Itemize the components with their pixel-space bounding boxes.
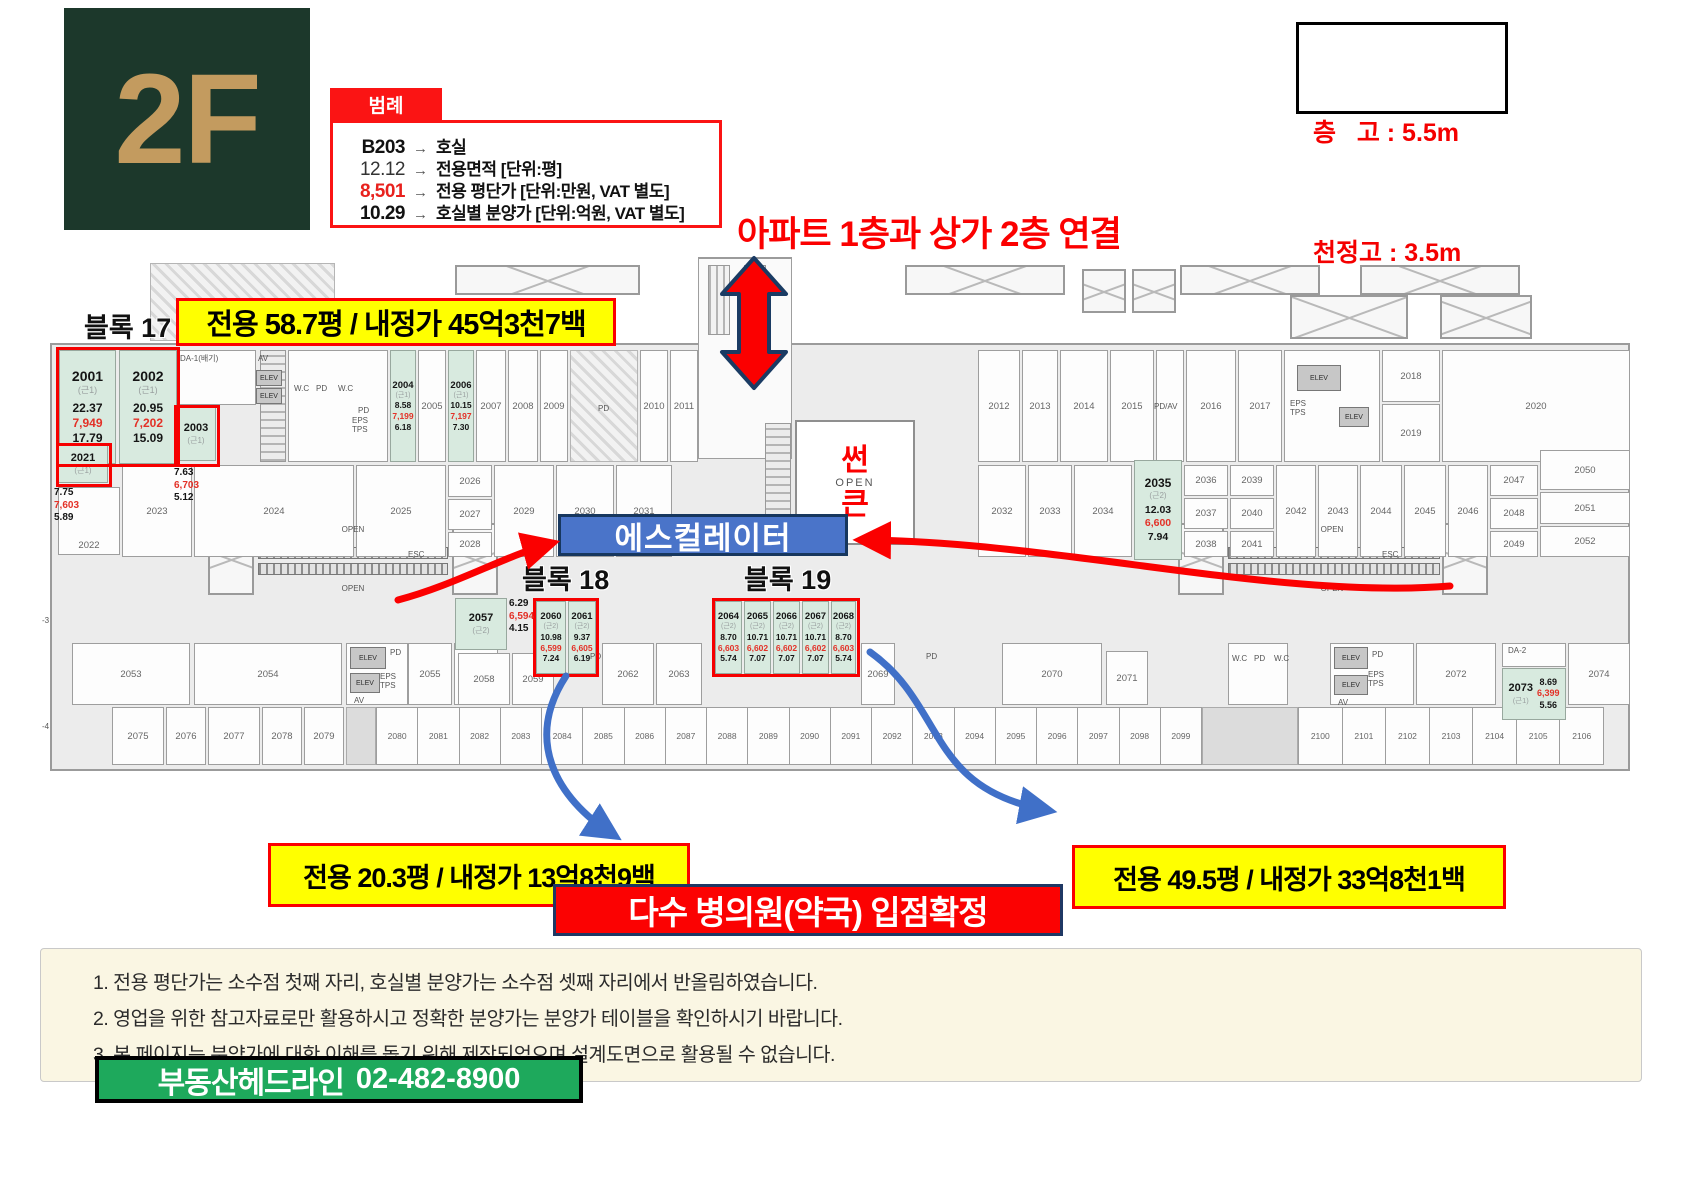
label-eps-tps: EPS TPS — [352, 417, 368, 435]
room-2098: 2098 — [1120, 708, 1161, 764]
block17-label: 블록 17 — [84, 306, 171, 345]
room-2050: 2050 — [1540, 450, 1630, 490]
room-2024: 2024 — [194, 465, 354, 557]
vent-xbox — [1290, 295, 1408, 339]
room-2055: 2055 — [408, 643, 452, 705]
room-2015: 2015 — [1110, 350, 1154, 462]
room-2096: 2096 — [1037, 708, 1078, 764]
elevator-icon: ELEV — [1334, 675, 1368, 695]
arrow-icon: → — [413, 206, 428, 223]
unit-2060: 2060(근2)10.986,5997.24 — [536, 601, 566, 674]
unit-2021-values: 7.757,6035.89 — [54, 487, 79, 525]
facility-room — [288, 350, 388, 462]
label-av: AV — [354, 697, 364, 706]
room-2017: 2017 — [1238, 350, 1282, 462]
label-wc: W.C — [1274, 655, 1289, 664]
unit-2068: 2068(근2)8.706,6035.74 — [831, 601, 856, 674]
room-2027: 2027 — [448, 499, 492, 530]
page: 2F 범례 B203 → 호실 12.12 → 전용면적 [단위:평] 8,50… — [0, 0, 1682, 1190]
room-2037: 2037 — [1184, 498, 1228, 529]
label-open: OPEN — [307, 585, 399, 594]
room-2029: 2029 — [494, 465, 554, 557]
room-2008: 2008 — [508, 350, 538, 462]
legend-desc: 호실별 분양가 [단위:억원, VAT 별도] — [436, 199, 684, 224]
label-pd: PD — [316, 385, 327, 394]
room-2038: 2038 — [1184, 531, 1228, 557]
room-2010: 2010 — [640, 350, 668, 462]
stair-gap — [346, 707, 376, 765]
room-2014: 2014 — [1060, 350, 1108, 462]
room-2036: 2036 — [1184, 465, 1228, 496]
label-eps-tps: EPS TPS — [1290, 400, 1306, 418]
label-pd: PD — [590, 653, 601, 662]
label-esc: ESC — [408, 551, 424, 560]
vent-xbox — [905, 265, 1065, 295]
legend-row: 10.29 → 호실별 분양가 [단위:억원, VAT 별도] — [349, 199, 709, 221]
room-2045: 2045 — [1404, 465, 1446, 557]
room-2097: 2097 — [1078, 708, 1119, 764]
room-2062: 2062 — [602, 643, 654, 705]
label-eps-tps: EPS TPS — [1368, 671, 1384, 689]
unit-2065: 2065(근2)10.716,6027.07 — [744, 601, 771, 674]
room-2087: 2087 — [666, 708, 707, 764]
room-2032: 2032 — [978, 465, 1026, 557]
room-2090: 2090 — [790, 708, 831, 764]
unit-2003: 2003(근1) — [176, 407, 216, 461]
elevator-icon: ELEV — [1339, 407, 1369, 427]
room-2047: 2047 — [1490, 465, 1538, 496]
room-2025: 2025 — [356, 465, 446, 557]
elevator-icon: ELEV — [256, 370, 282, 386]
room-2016: 2016 — [1186, 350, 1236, 462]
room-2052: 2052 — [1540, 526, 1630, 557]
room-2028: 2028 — [448, 532, 492, 557]
legend: B203 → 호실 12.12 → 전용면적 [단위:평] 8,501 → 전용… — [330, 120, 722, 228]
room-2091: 2091 — [831, 708, 872, 764]
unit-2035: 2035(근2)12.036,6007.94 — [1134, 460, 1182, 560]
unit-2066: 2066(근2)10.716,6027.07 — [773, 601, 800, 674]
room-2077: 2077 — [208, 707, 260, 765]
label-open: OPEN — [1272, 585, 1392, 594]
room-2092: 2092 — [872, 708, 913, 764]
elevator-icon: ELEV — [256, 388, 282, 404]
room-2058: 2058 — [458, 653, 510, 705]
room-2033: 2033 — [1028, 465, 1072, 557]
label-wc: W.C — [338, 385, 353, 394]
room-2093: 2093 — [913, 708, 954, 764]
floor-label: 2F — [114, 46, 259, 193]
room-2085: 2085 — [583, 708, 624, 764]
room-2040: 2040 — [1230, 498, 1274, 529]
label-pdav: PD/AV — [1154, 403, 1177, 412]
elevator-icon: ELEV — [350, 673, 380, 693]
unit-2067: 2067(근2)10.716,6027.07 — [802, 601, 829, 674]
room-2046: 2046 — [1448, 465, 1488, 557]
room-2074: 2074 — [1568, 643, 1630, 705]
stair-gap — [1202, 707, 1298, 765]
room-2053: 2053 — [72, 643, 190, 705]
room-2005: 2005 — [418, 350, 446, 462]
room-2034: 2034 — [1074, 465, 1132, 557]
room-2071: 2071 — [1106, 651, 1148, 705]
escalator-banner: 에스컬레이터 — [558, 514, 848, 556]
height-info: 층 고 : 5.5m 천정고 : 3.5m — [1296, 22, 1508, 114]
legend-value: 10.29 — [349, 203, 405, 225]
unit-2057-values: 6.296,5944.15 — [509, 598, 534, 636]
label-open: OPEN — [307, 526, 399, 535]
room-2012: 2012 — [978, 350, 1020, 462]
room-2081: 2081 — [418, 708, 459, 764]
room-2099: 2099 — [1161, 708, 1201, 764]
label-pd: PD — [390, 649, 401, 658]
label-open: OPEN — [1272, 526, 1392, 535]
legend-row: B203 → 호실 — [349, 133, 709, 155]
room-2106: 2106 — [1560, 708, 1603, 764]
label-esc: ESC — [1382, 551, 1398, 560]
room-2083: 2083 — [501, 708, 542, 764]
stairs-icon — [260, 350, 286, 462]
confirmation-banner: 다수 병의원(약국) 입점확정 — [553, 884, 1063, 936]
room-2043: 2043 — [1318, 465, 1358, 557]
vent-xbox — [455, 265, 640, 295]
room-2086: 2086 — [625, 708, 666, 764]
label-pd: PD — [358, 407, 369, 416]
label-da1: DA-1(배기) — [180, 355, 218, 364]
room-2101: 2101 — [1343, 708, 1387, 764]
room-2069: 2069 — [861, 643, 895, 705]
room-2039: 2039 — [1230, 465, 1274, 496]
label-da2: DA-2 — [1508, 647, 1526, 656]
room-2082: 2082 — [460, 708, 501, 764]
footnote-line: 1. 전용 평단가는 소수점 첫째 자리, 호실별 분양가는 소수점 셋째 자리… — [93, 965, 1641, 1001]
room-2089: 2089 — [748, 708, 789, 764]
unit-2002: 2002(근1)20.957,20215.09 — [119, 350, 177, 464]
label-eps-tps: EPS TPS — [380, 673, 396, 691]
room-2044: 2044 — [1360, 465, 1402, 557]
room-2009: 2009 — [540, 350, 568, 462]
unit-2003-values: 7.636,7035.12 — [174, 467, 199, 505]
room-2084: 2084 — [542, 708, 583, 764]
room-2042: 2042 — [1276, 465, 1316, 557]
unit-2004: 2004(근1)8.587,1996.18 — [390, 350, 416, 462]
room-2072: 2072 — [1416, 643, 1496, 705]
unit-2006: 2006(근1)10.157,1977.30 — [448, 350, 474, 462]
escalator-bar — [1228, 563, 1440, 575]
room-2019: 2019 — [1382, 404, 1440, 462]
room-2018: 2018 — [1382, 350, 1440, 402]
facility-room — [1228, 643, 1288, 705]
room-2007: 2007 — [476, 350, 506, 462]
room-2020: 2020 — [1442, 350, 1630, 462]
brand-name: 부동산헤드라인 — [158, 1058, 344, 1102]
label-av: AV — [1338, 699, 1348, 708]
brand-phone: 02-482-8900 — [356, 1063, 520, 1096]
unit-2073: 2073(근1)8.696,3995.56 — [1502, 668, 1566, 720]
room-2103: 2103 — [1430, 708, 1474, 764]
room-2011: 2011 — [670, 350, 698, 462]
vent-xbox — [1082, 269, 1126, 313]
label-pd: PD — [598, 405, 609, 414]
room-2013: 2013 — [1022, 350, 1058, 462]
legend-row: 8,501 → 전용 평단가 [단위:만원, VAT 별도] — [349, 177, 709, 199]
elevator-icon: ELEV — [1334, 647, 1368, 669]
label-av: AV — [258, 355, 268, 364]
block19-label: 블록 19 — [744, 558, 831, 597]
floor-height: 층 고 : 5.5m — [1313, 113, 1505, 153]
bottom-row-mid: 2080208120822083208420852086208720882089… — [376, 707, 1202, 765]
room-2076: 2076 — [166, 707, 206, 765]
escalator-icon — [708, 265, 730, 335]
room-2026: 2026 — [448, 465, 492, 497]
room-2078: 2078 — [262, 707, 302, 765]
unit-2061: 2061(근2)9.376,6056.19 — [568, 601, 596, 674]
label-wc: W.C — [1232, 655, 1247, 664]
vent-xbox — [1132, 269, 1176, 313]
block18-label: 블록 18 — [522, 558, 609, 597]
escalator-icon — [744, 265, 766, 335]
room-2095: 2095 — [996, 708, 1037, 764]
label-pd: PD — [926, 653, 937, 662]
edge-label: -4 — [42, 723, 49, 732]
room-2051: 2051 — [1540, 492, 1630, 524]
label-esc: ESC — [698, 339, 792, 348]
unit-2064: 2064(근2)8.706,6035.74 — [715, 601, 742, 674]
elevator-icon: ELEV — [1297, 365, 1341, 391]
callout-block19: 전용 49.5평 / 내정가 33억8천1백 — [1072, 845, 1506, 909]
label-wc: W.C — [294, 385, 309, 394]
room-2075: 2075 — [112, 707, 164, 765]
edge-label: -3 — [42, 617, 49, 626]
room-2041: 2041 — [1230, 531, 1274, 557]
unit-2021: 2021(근1) — [58, 445, 108, 483]
room-2088: 2088 — [707, 708, 748, 764]
bridge-note: 아파트 1층과 상가 2층 연결 — [737, 206, 1207, 257]
room-2070: 2070 — [1002, 643, 1102, 705]
legend-title: 범례 — [330, 88, 442, 120]
vent-xbox — [1440, 295, 1532, 339]
legend-row: 12.12 → 전용면적 [단위:평] — [349, 155, 709, 177]
floor-badge: 2F — [64, 8, 310, 230]
escalator-bar — [258, 563, 448, 575]
elevator-icon: ELEV — [350, 647, 386, 669]
room-2102: 2102 — [1386, 708, 1430, 764]
room-2063: 2063 — [656, 643, 702, 705]
unit-2057: 2057(근2) — [455, 598, 507, 650]
brand-banner: 부동산헤드라인 02-482-8900 — [95, 1056, 583, 1103]
room-2048: 2048 — [1490, 498, 1538, 529]
room-2054: 2054 — [194, 643, 342, 705]
room-2079: 2079 — [304, 707, 344, 765]
label-pd: PD — [1372, 651, 1383, 660]
room-2094: 2094 — [955, 708, 996, 764]
room-2100: 2100 — [1299, 708, 1343, 764]
vent-xbox — [1360, 265, 1520, 295]
callout-block17: 전용 58.7평 / 내정가 45억3천7백 — [176, 298, 616, 346]
label-pd: PD — [1254, 655, 1265, 664]
room-2080: 2080 — [377, 708, 418, 764]
vent-xbox — [1180, 265, 1320, 295]
room-2049: 2049 — [1490, 531, 1538, 557]
footnote-line: 2. 영업을 위한 참고자료로만 활용하시고 정확한 분양가는 분양가 테이블을… — [93, 1001, 1641, 1037]
